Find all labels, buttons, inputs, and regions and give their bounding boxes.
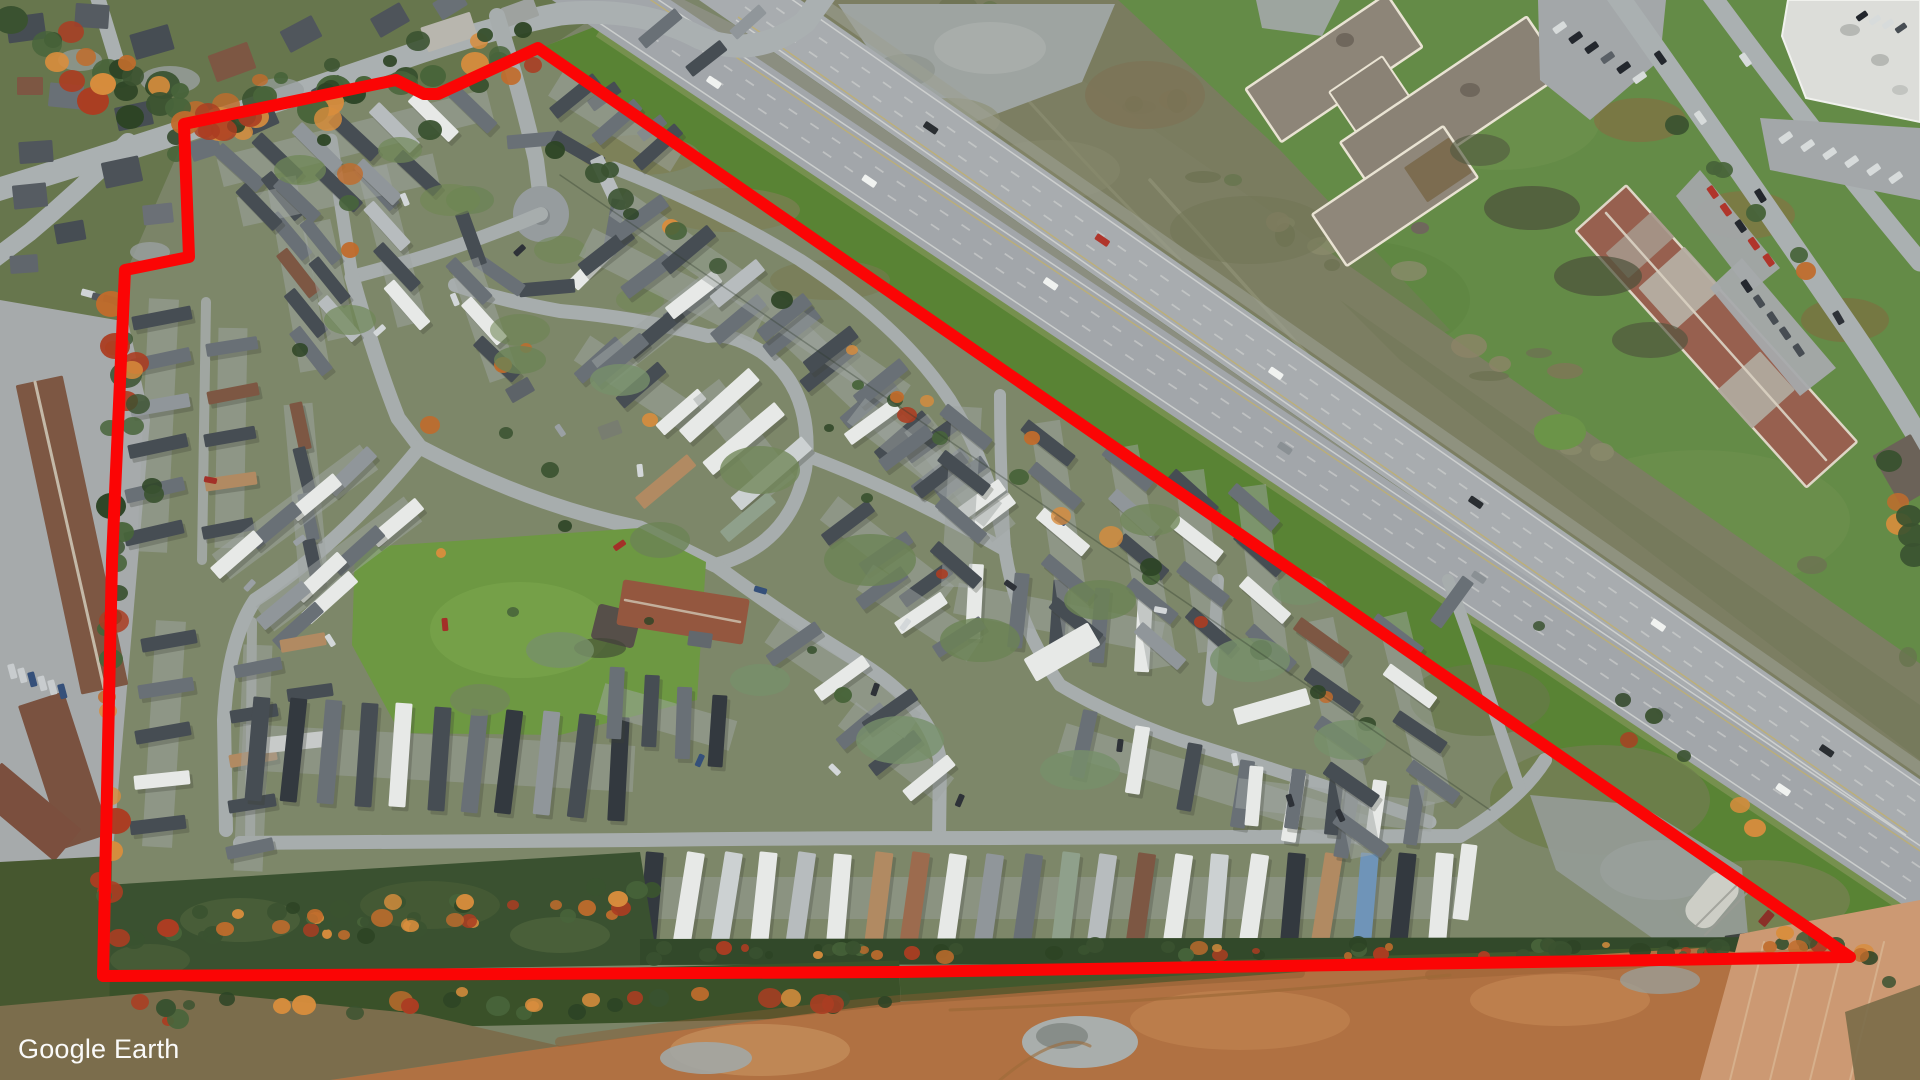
svg-text:Google Earth: Google Earth — [18, 1034, 180, 1064]
